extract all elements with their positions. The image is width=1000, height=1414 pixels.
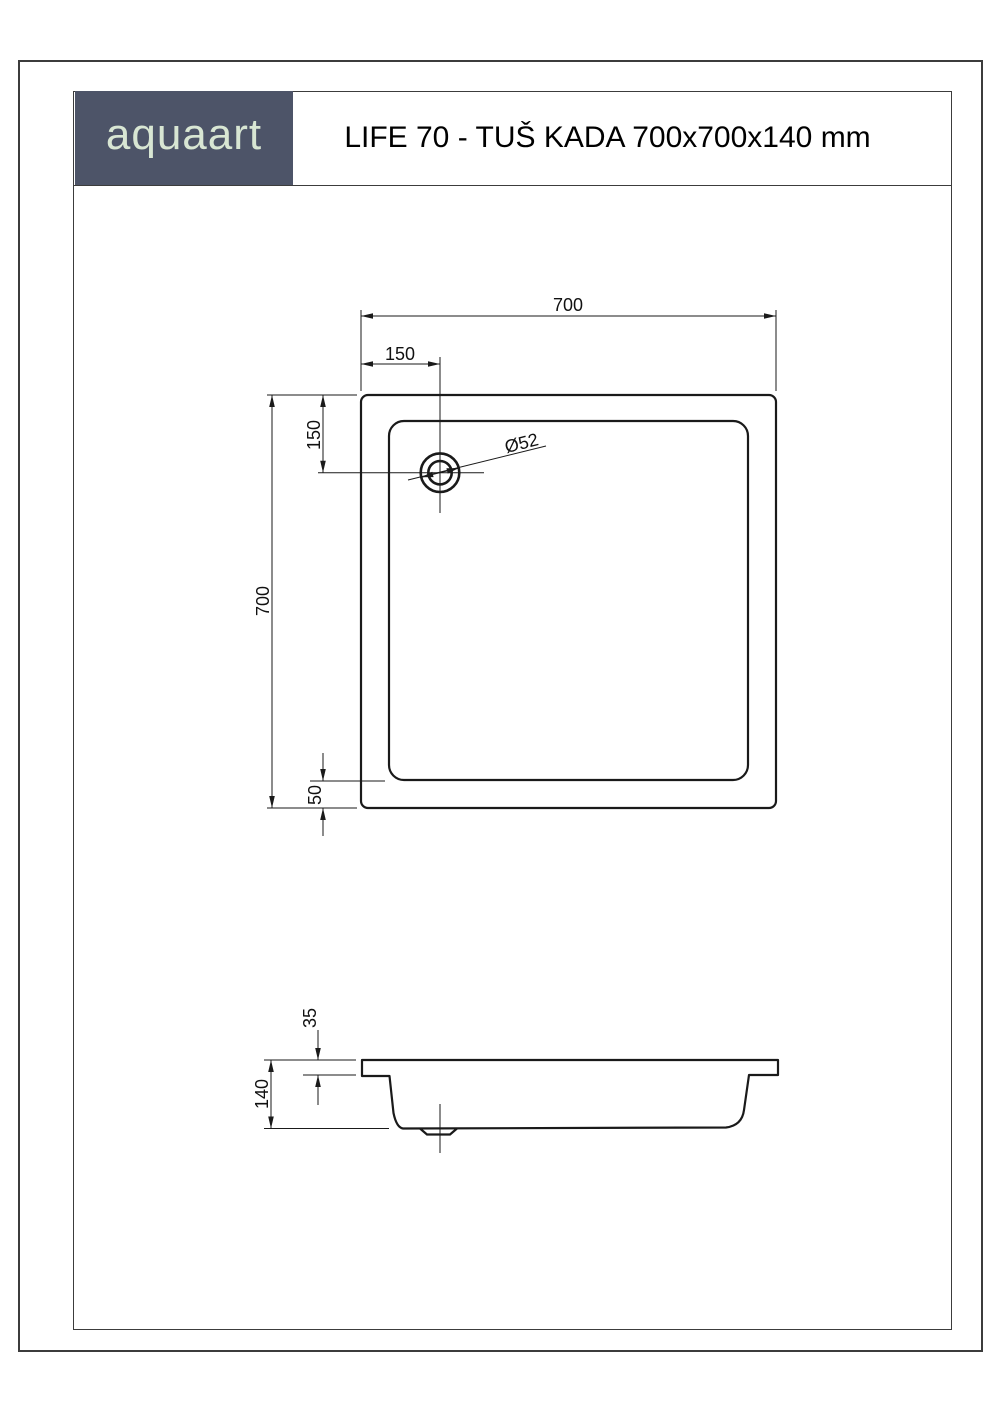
- tray-profile-outline: [362, 1060, 778, 1129]
- dim-total-height-label: 140: [252, 1079, 272, 1109]
- dim-drain-offset-x-label: 150: [385, 344, 415, 364]
- drain-diameter-arrow: [440, 468, 459, 473]
- tray-outline-top: [361, 395, 776, 808]
- technical-drawing: 700 150 150 700 50 Ø52 35 140: [0, 0, 1000, 1414]
- dim-height-label: 700: [253, 586, 273, 616]
- tray-basin-outline: [389, 421, 748, 780]
- dim-bottom-rim-label: 50: [305, 785, 325, 805]
- dim-drain-diameter-label: Ø52: [503, 429, 541, 457]
- side-view: 35 140: [252, 1008, 778, 1153]
- datasheet-page: aquaart LIFE 70 - TUŠ KADA 700x700x140 m…: [0, 0, 1000, 1414]
- dim-drain-offset-y-label: 150: [304, 420, 324, 450]
- top-view: 700 150 150 700 50 Ø52: [253, 295, 776, 836]
- dim-width-label: 700: [553, 295, 583, 315]
- drain-diameter-arrow: [421, 473, 440, 478]
- dim-rim-height-label: 35: [300, 1008, 320, 1028]
